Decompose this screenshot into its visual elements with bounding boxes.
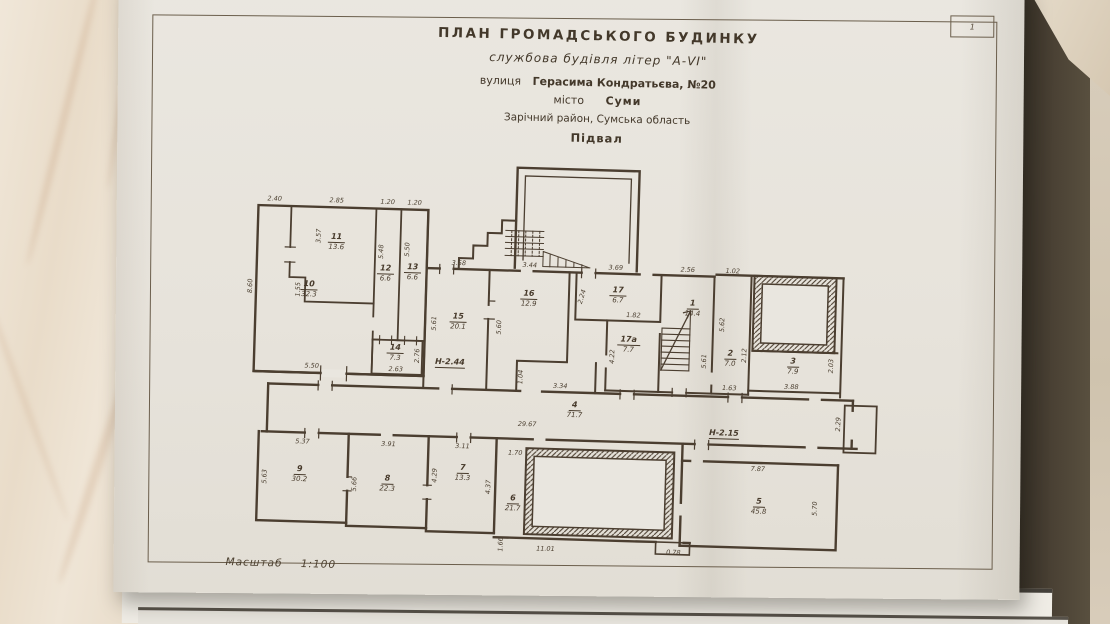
- room-number: 12: [377, 264, 394, 275]
- room-area: 32.3: [301, 290, 317, 299]
- marble-table-right: [1090, 0, 1110, 624]
- dimension-label: 5.37: [295, 437, 310, 445]
- room-area: 7.3: [389, 354, 400, 363]
- dimension-label: 5.62: [718, 318, 726, 333]
- room-label-2: 27.0: [724, 350, 736, 369]
- marble-vein: [0, 258, 71, 523]
- room-label-4: 471.7: [566, 401, 582, 420]
- room-number: 10: [300, 280, 317, 291]
- drawing-sheet: 1 ПЛАН ГРОМАДСЬКОГО БУДИНКУ службова буд…: [113, 0, 1024, 600]
- dimension-label: 2.29: [834, 417, 842, 432]
- city-line: місто Суми: [429, 91, 765, 111]
- room-label-7: 713.3: [455, 464, 471, 483]
- room-area: 30.2: [291, 475, 307, 484]
- dimension-label: 3.91: [381, 440, 396, 448]
- room-area: 14.4: [685, 310, 701, 319]
- dimension-label: 2.24: [576, 289, 588, 305]
- dimension-label: 1.66: [496, 537, 504, 552]
- room-area: 21.7: [505, 505, 521, 514]
- dimension-label: 4.29: [430, 468, 438, 483]
- dimension-label: 5.61: [430, 316, 438, 331]
- room-area: 20.1: [450, 323, 466, 332]
- dimension-label: 7.87: [751, 465, 766, 473]
- dimension-label: 8.60: [246, 278, 254, 293]
- dimension-label: 5.70: [811, 501, 819, 516]
- room-area: 13.6: [328, 243, 344, 252]
- marble-vein: [24, 0, 103, 266]
- drawing-subtitle: службова будівля літер "А-VI": [430, 49, 766, 70]
- room-area: 12.9: [521, 300, 537, 309]
- dimension-label: 3.44: [522, 261, 537, 269]
- dimension-label: 1.55: [294, 282, 302, 297]
- room-area: 6.6: [407, 274, 418, 283]
- room-number: 5: [753, 497, 765, 508]
- street-label: вулиця: [480, 74, 522, 88]
- dimension-label: 1.82: [626, 311, 641, 319]
- dimension-label: 1.70: [508, 449, 523, 457]
- dimension-label: 4.22: [608, 349, 616, 364]
- dimension-label: 1.02: [725, 267, 740, 275]
- room-number: 4: [569, 401, 581, 412]
- room-area: 7.9: [787, 368, 798, 377]
- room-label-6: 621.7: [505, 494, 521, 513]
- room-area: 45.8: [751, 508, 767, 517]
- district-line: Зарічний район, Сумська область: [429, 110, 765, 129]
- room-number: 14: [387, 344, 404, 355]
- room-area: 7.7: [623, 346, 634, 355]
- room-label-14: 147.3: [386, 344, 404, 363]
- height-mark: Н-2.44: [435, 357, 465, 369]
- room-label-5: 545.8: [751, 497, 767, 516]
- dimension-label: 2.03: [827, 359, 835, 374]
- dimension-label: 1.04: [516, 370, 524, 385]
- page-number: 1: [970, 22, 975, 31]
- room-number: 8: [381, 474, 393, 485]
- room-number: 17а: [617, 335, 640, 346]
- dimension-label: 5.50: [304, 361, 319, 369]
- title-block: ПЛАН ГРОМАДСЬКОГО БУДИНКУ службова будів…: [429, 25, 767, 149]
- room-number: 3: [787, 357, 799, 368]
- room-label-8: 822.3: [379, 474, 395, 493]
- dimension-label: 29.67: [518, 420, 537, 429]
- room-label-12: 126.6: [377, 264, 395, 283]
- dimension-label: 2.63: [388, 365, 403, 373]
- dimension-label: 2.76: [413, 348, 421, 363]
- street-value: Герасима Кондратьєва, №20: [532, 75, 716, 92]
- room-label-9: 930.2: [291, 465, 307, 484]
- scale-label: Масштаб: [225, 556, 282, 569]
- room-label-17: 176.7: [609, 286, 627, 305]
- room-label-10: 1032.3: [300, 280, 318, 299]
- dimension-label: 1.20: [380, 198, 395, 206]
- dimension-label: 5.66: [350, 477, 358, 492]
- room-number: 2: [724, 350, 736, 361]
- room-label-15: 1520.1: [449, 312, 467, 331]
- dimension-label: 5.61: [700, 354, 708, 369]
- dimension-label: 3.69: [608, 263, 623, 271]
- dimension-label: 2.12: [740, 348, 748, 363]
- page-number-box: 1: [950, 15, 994, 37]
- room-label-11: 1113.6: [328, 233, 346, 252]
- room-area: 22.3: [379, 485, 395, 494]
- room-number: 16: [520, 289, 537, 300]
- scale-value: 1:100: [301, 558, 337, 571]
- room-number: 15: [450, 312, 467, 323]
- room-number: 6: [507, 494, 519, 505]
- dimension-label: 3.88: [784, 383, 799, 391]
- dimension-label: 4.37: [484, 480, 492, 495]
- room-label-1: 114.4: [685, 299, 701, 318]
- room-label-13: 136.6: [404, 263, 422, 282]
- room-number: 9: [294, 465, 306, 476]
- room-label-16: 1612.9: [520, 289, 538, 308]
- room-area: 13.3: [455, 474, 471, 483]
- room-number: 11: [328, 233, 345, 244]
- room-area: 71.7: [566, 411, 582, 420]
- room-number: 17: [609, 286, 626, 297]
- dimension-label: 2.56: [680, 266, 695, 274]
- city-value: Суми: [605, 94, 641, 108]
- plan-labels: 1032.31113.6126.6136.6147.31520.11612.91…: [163, 146, 899, 591]
- dimension-label: 5.48: [377, 244, 385, 259]
- room-label-17а: 17а7.7: [617, 335, 640, 354]
- city-label: місто: [553, 93, 584, 107]
- dimension-label: 2.40: [267, 194, 282, 202]
- room-number: 7: [457, 464, 469, 475]
- photo-of-floor-plan: 1 ПЛАН ГРОМАДСЬКОГО БУДИНКУ службова буд…: [0, 0, 1110, 624]
- room-area: 6.6: [380, 275, 391, 284]
- dimension-label: 2.85: [329, 196, 344, 204]
- dimension-label: 11.01: [536, 544, 555, 553]
- dimension-label: 3.11: [455, 442, 470, 450]
- room-number: 13: [404, 263, 421, 274]
- room-number: 1: [687, 299, 699, 310]
- dimension-label: 0.78: [666, 548, 681, 556]
- dimension-label: 5.60: [495, 320, 503, 335]
- dimension-label: 5.63: [260, 469, 268, 484]
- dimension-label: 3.34: [553, 382, 568, 390]
- street-line: вулиця Герасима Кондратьєва, №20: [430, 73, 766, 93]
- dimension-label: 3.58: [452, 259, 467, 267]
- dimension-label: 1.63: [722, 384, 737, 392]
- dimension-label: 1.20: [407, 198, 422, 206]
- dimension-label: 3.57: [314, 228, 322, 243]
- dimension-label: 5.50: [403, 242, 411, 257]
- height-mark: Н-2.15: [709, 428, 739, 440]
- floor-plan: 1032.31113.6126.6136.6147.31520.11612.91…: [163, 146, 899, 591]
- room-area: 7.0: [724, 360, 735, 369]
- room-label-3: 37.9: [787, 357, 799, 376]
- room-area: 6.7: [612, 297, 623, 306]
